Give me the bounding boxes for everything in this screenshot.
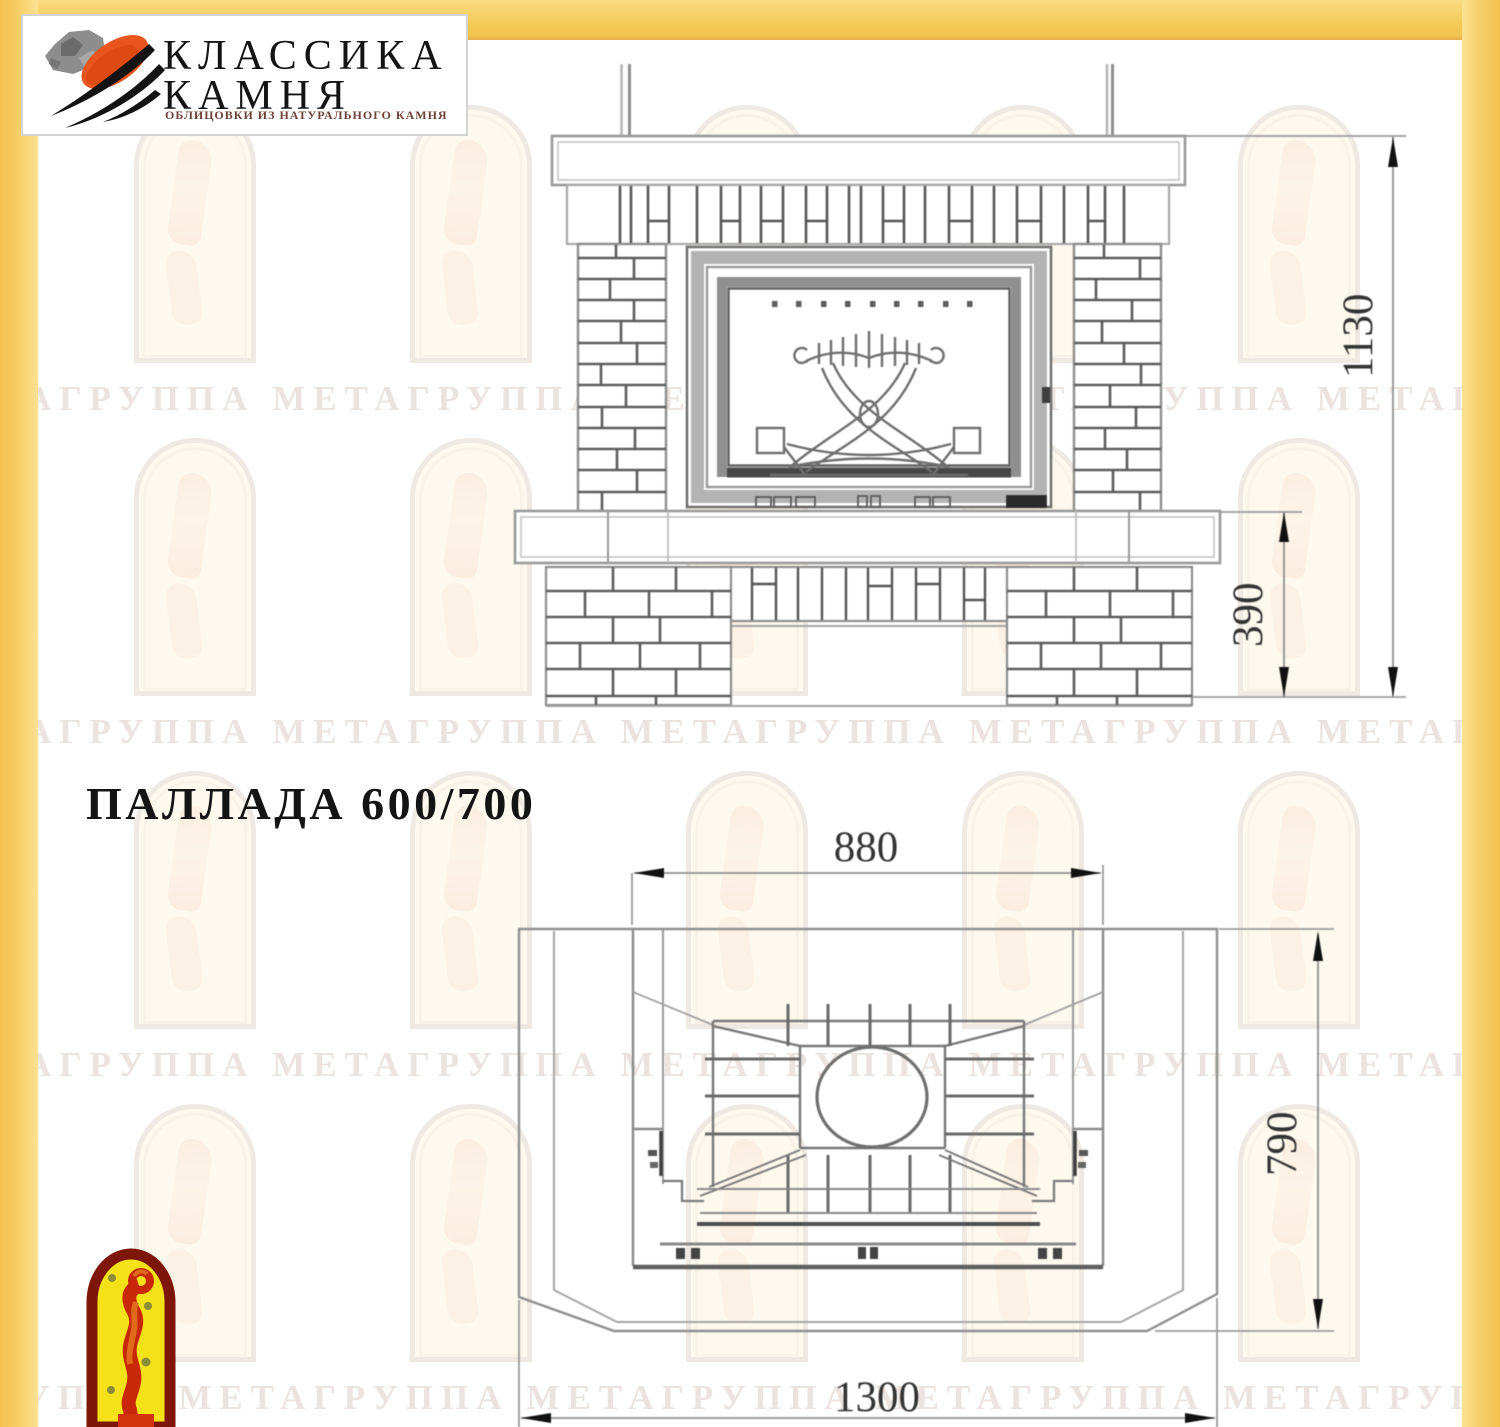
svg-text:1300: 1300 [834,1374,920,1421]
svg-text:880: 880 [834,824,899,871]
svg-text:790: 790 [1259,1112,1306,1177]
svg-text:1130: 1130 [1335,294,1382,378]
svg-text:390: 390 [1225,583,1272,648]
